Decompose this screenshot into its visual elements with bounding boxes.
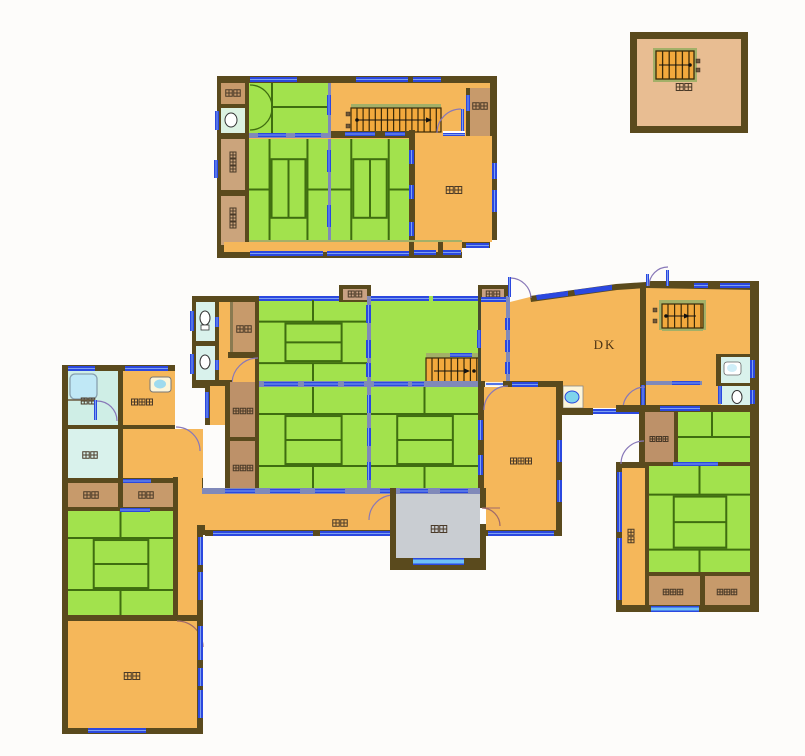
svg-text:DK: DK <box>594 337 617 352</box>
